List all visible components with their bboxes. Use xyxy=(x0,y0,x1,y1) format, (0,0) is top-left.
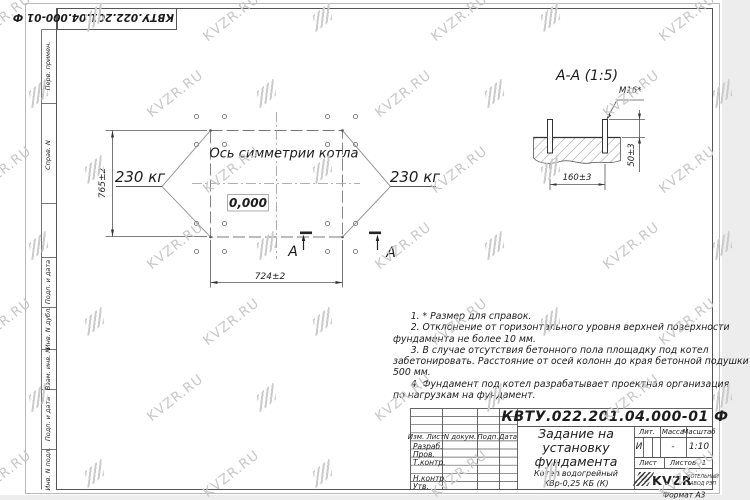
symmetry-axis-label: Ось симметрии котла xyxy=(210,147,359,162)
col-header-date: Дата xyxy=(499,433,517,441)
dim-label-50: 50±3 xyxy=(627,143,637,166)
drawing-title-line: Задание на xyxy=(518,427,634,441)
scale-header: Масштаб xyxy=(682,428,715,436)
frame-column-inv-podl: Инв. N подл. xyxy=(44,448,52,491)
frame-column-inv-dubl: Инв. N дубл. xyxy=(44,307,52,350)
format-label: Формат А3 xyxy=(663,491,706,500)
note-line: забетонировать. Расстояние от осей колон… xyxy=(393,356,749,367)
thread-callout-leader xyxy=(607,100,645,120)
note-line: по нагрузкам на фундамент. xyxy=(393,390,749,401)
lit-value: И xyxy=(636,442,643,452)
thread-callout: М16* xyxy=(619,86,641,96)
note-line: 3. В случае отсутствия бетонного пола пл… xyxy=(393,345,749,356)
note-line: 500 мм. xyxy=(393,367,749,378)
scale-value: 1:10 xyxy=(689,442,709,452)
note-line: 2. Отклонение от горизонтального уровня … xyxy=(393,322,749,333)
load-label-right: 230 кг xyxy=(390,168,440,186)
col-header-sign: Подп. xyxy=(477,433,498,441)
dim-label-765: 765±2 xyxy=(98,168,108,198)
drawing-title: Задание на установку фундамента xyxy=(518,427,634,469)
kvzr-logo-caption: КОТЕЛЬНЫЙ xyxy=(687,474,719,480)
sheets-count: 1 xyxy=(702,459,706,467)
section-letter-left: А xyxy=(288,244,298,260)
doc-number-top-rotated: КВТУ.022.201.04.000-01 Ф xyxy=(60,11,174,23)
product-name-line: Котел водогрейный xyxy=(518,469,634,479)
title-block-doc-number: КВТУ.022.201.04.000-01 Ф xyxy=(502,409,729,425)
note-line: 1. * Размер для справок. xyxy=(393,311,749,322)
drawing-linework xyxy=(0,0,750,500)
drawing-title-line: фундамента xyxy=(518,455,634,469)
product-name: Котел водогрейный КВр-0,25 КБ (К) xyxy=(518,469,634,488)
load-label-left: 230 кг xyxy=(115,168,165,186)
section-view-title: А-А (1:5) xyxy=(556,68,618,84)
col-header-izm: Изм. Лист xyxy=(408,433,444,441)
frame-column-sprav-n: Справ. N xyxy=(44,140,52,170)
sheets-header: Листов xyxy=(670,459,696,467)
note-line: 4. Фундамент под котел разрабатывает про… xyxy=(393,379,749,390)
page-margin-shade xyxy=(0,0,750,500)
frame-column-podp-data-2: Подп. и дата xyxy=(44,397,52,441)
drawing-title-line: установку xyxy=(518,441,634,455)
frame-column-podp-data-1: Подп. и дата xyxy=(44,260,52,304)
anchor-bolt xyxy=(603,120,608,154)
mass-header: Масса xyxy=(662,428,684,436)
anchor-bolt-holes xyxy=(194,114,357,253)
note-line: фундамента не более 10 мм. xyxy=(393,334,749,345)
sheet-header: Лист xyxy=(639,459,657,467)
section-cut-marks xyxy=(300,232,381,251)
notes-block: 1. * Размер для справок. 2. Отклонение о… xyxy=(393,311,749,401)
frame-column-perv-primen: Перв. примен. xyxy=(44,42,52,91)
elevation-mark: 0,000 xyxy=(229,196,267,210)
plan-linework xyxy=(106,112,437,288)
lit-header: Лит. xyxy=(639,428,655,436)
mass-value: - xyxy=(671,442,674,452)
row-label-tcontrol: Т.контр. xyxy=(413,458,446,467)
section-letter-right: А xyxy=(386,245,396,261)
anchor-bolt xyxy=(548,120,553,154)
kvzr-logo-caption: ЗАВОД РЭП xyxy=(687,481,716,487)
row-label-approver: Утв. xyxy=(413,482,429,491)
frame-column-vzam-inv: Взам. инв. N xyxy=(44,348,52,390)
dim-label-724: 724±2 xyxy=(255,272,285,282)
drawing-sheet: КВТУ.022.201.04.000-01 Ф Перв. примен. С… xyxy=(0,0,750,500)
dim-label-160: 160±3 xyxy=(563,173,592,183)
col-header-doc: N докум. xyxy=(444,433,476,441)
product-name-line: КВр-0,25 КБ (К) xyxy=(518,479,634,489)
